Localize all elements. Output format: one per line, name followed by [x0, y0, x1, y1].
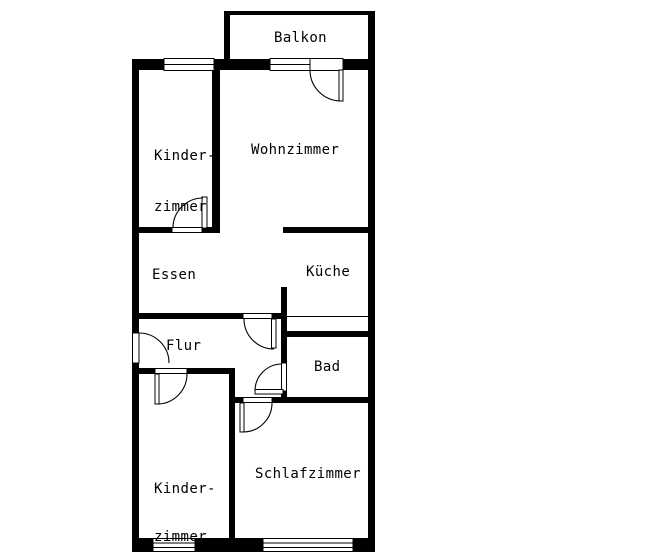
balkon-wall-left — [224, 11, 230, 59]
kinderzimmer-bottom-door-arc — [157, 374, 187, 404]
bad-door-arc — [255, 364, 282, 391]
wall-bad-north — [281, 331, 368, 337]
room-label-balkon: Balkon — [274, 30, 327, 46]
room-label-bad: Bad — [314, 359, 341, 375]
floor-plan: Balkon Kinder- zimmer Wohnzimmer Essen K… — [0, 0, 660, 560]
schlafzimmer-door-arc — [243, 403, 272, 432]
schlafzimmer-door-opening — [243, 398, 272, 403]
wall-kueche-north — [283, 227, 368, 233]
kinderzimmer-top-window — [164, 59, 214, 71]
entrance-door-opening — [133, 333, 140, 363]
room-label-kinderzimmer-bottom-line1: Kinder- — [154, 481, 216, 497]
room-label-kinderzimmer-top-line1: Kinder- — [154, 147, 216, 166]
room-label-wohnzimmer: Wohnzimmer — [251, 142, 339, 158]
room-label-kinderzimmer-bottom-line2: zimmer — [154, 529, 216, 545]
outer-wall-right — [368, 11, 375, 552]
room-label-kinderzimmer-top: Kinder- zimmer — [154, 115, 216, 249]
schlafzimmer-door-leaf — [240, 403, 244, 432]
wall-kinderzimmer-schlafzimmer — [229, 368, 235, 552]
schlafzimmer-window — [263, 539, 353, 552]
flur-door-opening — [243, 314, 272, 319]
bad-door-leaf — [255, 390, 283, 395]
balkon-door-leaf — [339, 70, 343, 101]
outer-wall-left — [132, 59, 139, 552]
balkon-door-arc — [310, 70, 341, 101]
room-label-flur: Flur — [166, 338, 201, 354]
room-label-kinderzimmer-bottom: Kinder- zimmer — [154, 449, 216, 560]
room-label-kinderzimmer-top-line2: zimmer — [154, 198, 216, 217]
balkon-wall-top — [224, 11, 375, 15]
room-label-kueche: Küche — [306, 264, 350, 280]
bad-door-opening — [282, 363, 287, 391]
flur-door-arc — [244, 319, 274, 349]
balkon-door-opening — [310, 59, 343, 71]
kinderzimmer-bottom-door-leaf — [155, 374, 159, 404]
room-label-schlafzimmer: Schlafzimmer — [255, 466, 361, 482]
kinderzimmer-bottom-door-opening — [155, 369, 187, 374]
flur-door-leaf — [272, 319, 277, 348]
entrance-door-arc — [139, 333, 169, 363]
room-label-essen: Essen — [152, 267, 196, 283]
balkon-window — [270, 59, 310, 71]
